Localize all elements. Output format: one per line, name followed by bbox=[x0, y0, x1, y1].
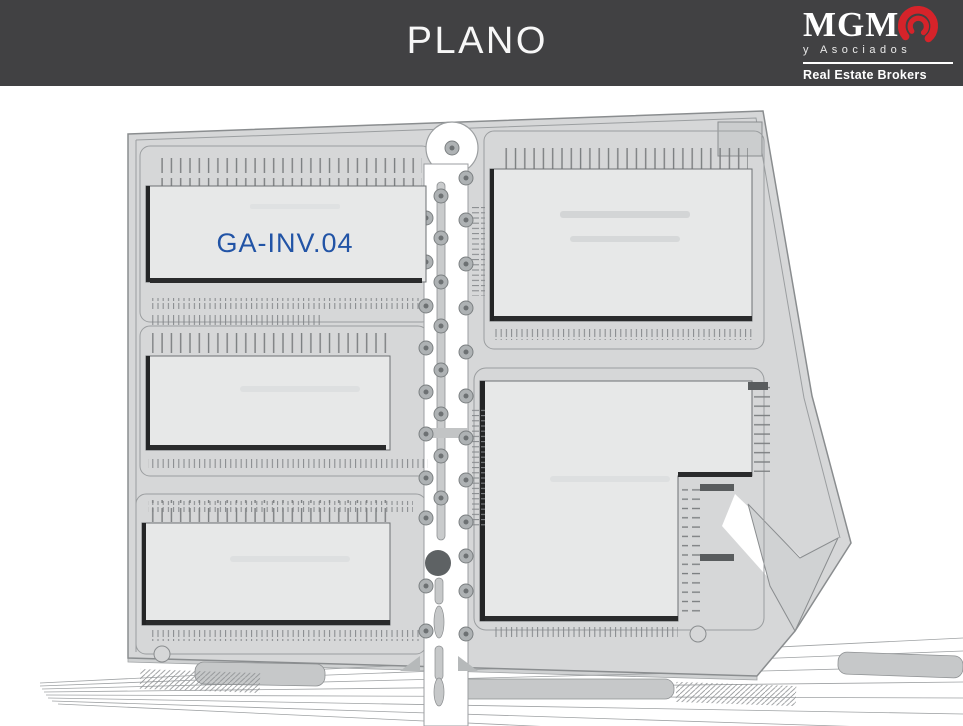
logo-divider bbox=[803, 62, 953, 64]
trailer-parking bbox=[150, 314, 320, 325]
trailer-parking bbox=[148, 457, 428, 468]
page-title: PLANO bbox=[407, 20, 548, 63]
faint-text bbox=[230, 556, 350, 562]
highway-median bbox=[838, 652, 963, 678]
logo-row: MGM bbox=[803, 7, 955, 47]
faint-text bbox=[240, 386, 360, 392]
mgm-spiral-icon bbox=[897, 5, 939, 47]
highway-median bbox=[452, 679, 674, 699]
building-bottom-left bbox=[142, 500, 420, 662]
side-parking bbox=[472, 408, 485, 528]
faint-text bbox=[250, 204, 340, 209]
loading-docks bbox=[152, 333, 388, 355]
site-feature-circle bbox=[690, 626, 706, 642]
mgm-logo: MGM y Asociados Real Estate Brokers bbox=[803, 7, 955, 82]
building-label: GA-INV.04 bbox=[216, 228, 353, 258]
site-plan: GA-INV.04 bbox=[0, 86, 963, 726]
road-surface bbox=[424, 164, 468, 726]
site-plan-drawing: GA-INV.04 bbox=[0, 86, 963, 726]
site-feature-circle bbox=[154, 646, 170, 662]
trailer-parking bbox=[492, 627, 678, 638]
building-top-left: GA-INV.04 bbox=[146, 158, 426, 325]
header-bar: PLANO MGM y Asociados Real Estate Broker… bbox=[0, 0, 963, 86]
roundabout bbox=[425, 550, 451, 576]
faint-text bbox=[550, 476, 670, 482]
logo-tagline: Real Estate Brokers bbox=[803, 68, 955, 82]
loading-docks bbox=[498, 148, 748, 170]
faint-text bbox=[570, 236, 680, 242]
building-top-right bbox=[472, 148, 752, 340]
trailer-parking bbox=[150, 298, 422, 309]
logo-text-mgm: MGM bbox=[803, 7, 899, 43]
side-parking bbox=[472, 204, 485, 296]
faint-text bbox=[560, 211, 690, 218]
trailer-parking bbox=[150, 630, 420, 641]
loading-docks bbox=[682, 482, 700, 614]
loading-docks bbox=[754, 386, 770, 472]
loading-docks bbox=[158, 158, 422, 186]
loading-docks bbox=[150, 500, 388, 522]
hatched-shoulder bbox=[140, 669, 261, 693]
hatched-shoulder bbox=[676, 682, 797, 706]
trailer-parking bbox=[494, 329, 752, 340]
